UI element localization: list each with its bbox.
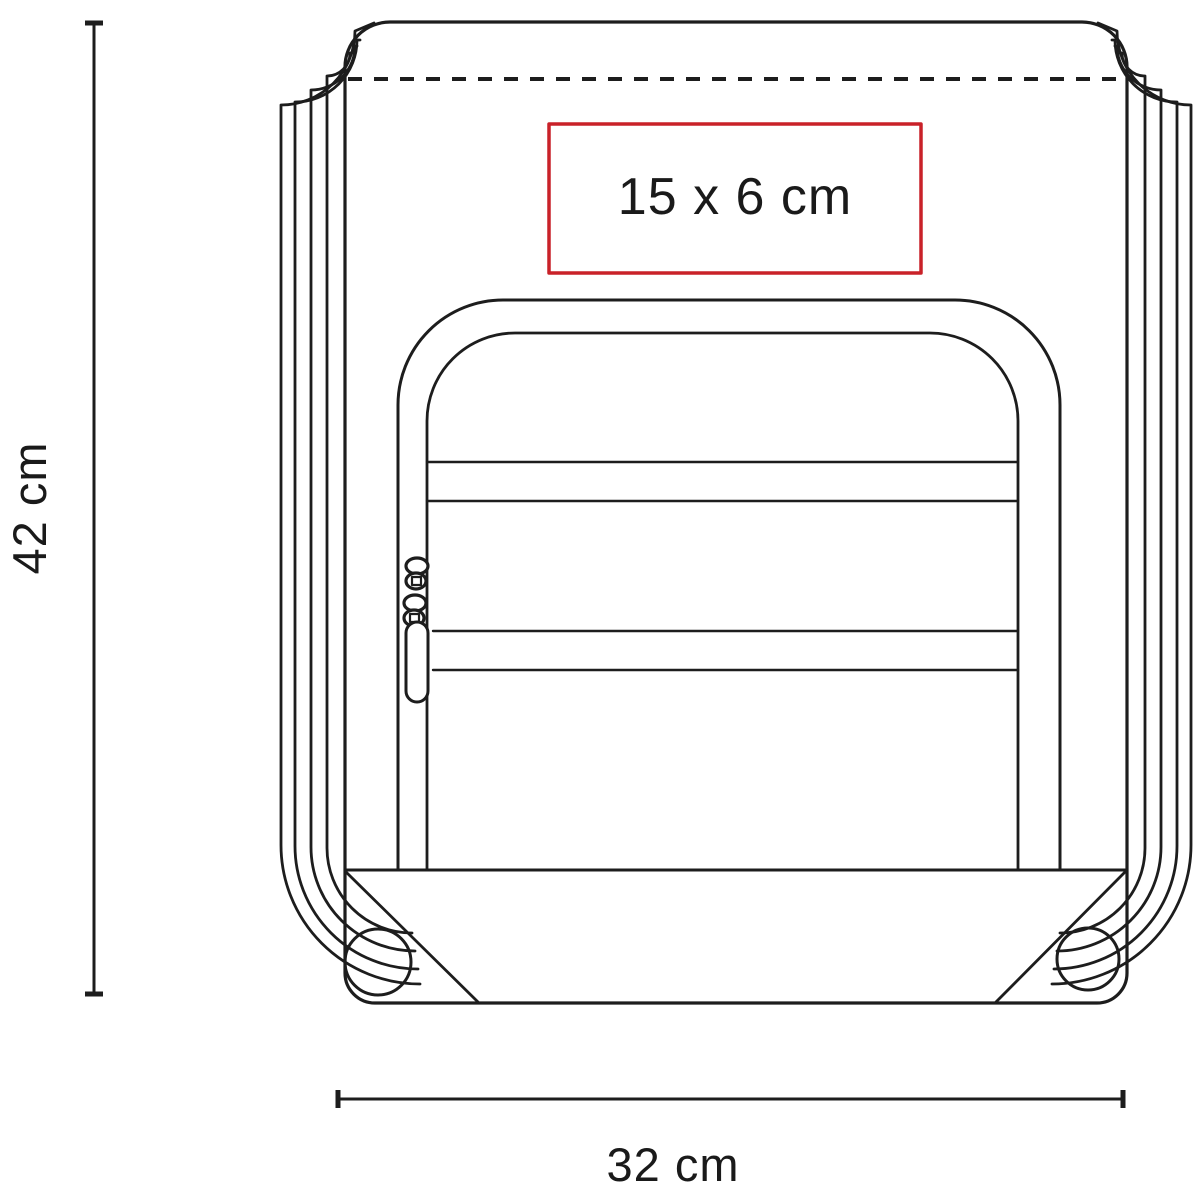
zipper-slider-top xyxy=(406,558,428,589)
product-dimension-diagram: 15 x 6 cm 42 cm 32 cm xyxy=(0,0,1200,1200)
height-dimension-label: 42 cm xyxy=(3,442,56,575)
zipper-pull-tab xyxy=(406,622,428,702)
print-area-label: 15 x 6 cm xyxy=(618,168,852,226)
drawstring-bag-line-drawing: 15 x 6 cm 42 cm 32 cm xyxy=(0,0,1200,1200)
width-dimension-label: 32 cm xyxy=(607,1138,740,1191)
height-dimension xyxy=(85,23,103,994)
zipper-assembly xyxy=(404,558,428,702)
width-dimension xyxy=(338,1090,1123,1108)
